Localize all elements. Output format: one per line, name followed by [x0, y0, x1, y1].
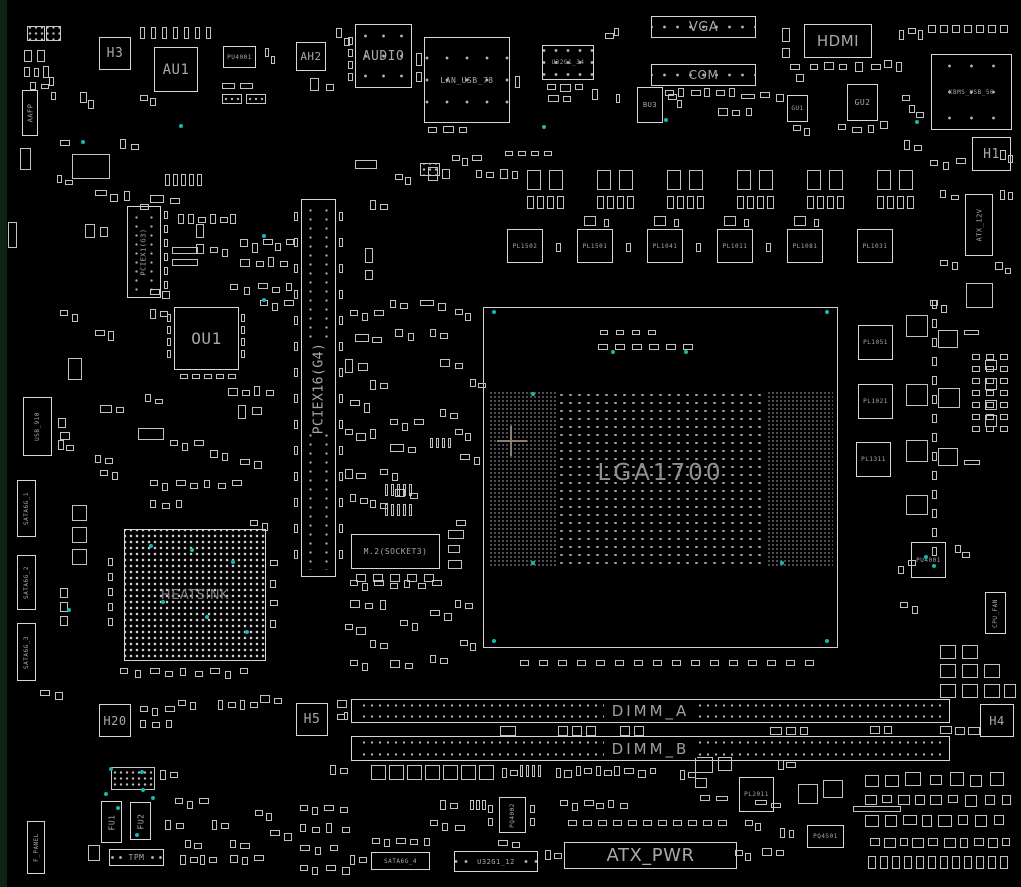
smd-part[interactable] — [930, 775, 942, 785]
smd-part[interactable] — [238, 405, 246, 419]
smd-part[interactable] — [364, 403, 370, 413]
smd-part[interactable] — [944, 838, 956, 848]
smd-part[interactable] — [853, 806, 901, 812]
smd-part[interactable] — [339, 498, 343, 507]
smd-part[interactable] — [605, 33, 614, 39]
smd-part[interactable] — [1004, 684, 1016, 698]
smd-part[interactable] — [900, 602, 908, 608]
smd-part[interactable] — [390, 300, 396, 308]
smd-part[interactable] — [955, 727, 965, 735]
smd-part[interactable] — [440, 658, 448, 664]
smd-part[interactable] — [1000, 25, 1008, 33]
smd-part[interactable] — [704, 88, 710, 97]
chip-pq4501[interactable]: PQ4501 — [807, 825, 844, 848]
smd-part[interactable] — [252, 243, 258, 253]
smd-part[interactable] — [300, 845, 310, 851]
smd-part[interactable] — [906, 495, 928, 515]
smd-part[interactable] — [549, 170, 563, 190]
smd-part[interactable] — [914, 145, 922, 151]
smd-part[interactable] — [228, 702, 236, 708]
smd-part[interactable] — [972, 354, 980, 360]
smd-part[interactable] — [930, 160, 938, 166]
connector-atx-pwr[interactable]: ATX_PWR — [564, 842, 737, 869]
smd-part[interactable] — [1008, 192, 1013, 200]
smd-part[interactable] — [654, 216, 666, 226]
smd-part[interactable] — [500, 726, 516, 736]
smd-part[interactable] — [339, 472, 343, 481]
smd-part[interactable] — [865, 775, 879, 787]
smd-part[interactable] — [789, 830, 794, 838]
smd-part[interactable] — [430, 329, 436, 337]
smd-part[interactable] — [164, 253, 168, 261]
smd-part[interactable] — [932, 357, 937, 366]
smd-part[interactable] — [617, 196, 624, 209]
smd-part[interactable] — [100, 405, 112, 413]
smd-part[interactable] — [212, 820, 217, 830]
smd-part[interactable] — [370, 380, 376, 390]
smd-part[interactable] — [448, 560, 462, 569]
smd-part[interactable] — [294, 238, 298, 247]
smd-part[interactable] — [222, 249, 228, 257]
smd-part[interactable] — [140, 95, 148, 101]
smd-part[interactable] — [240, 83, 253, 89]
smd-part[interactable] — [539, 660, 548, 666]
smd-part[interactable] — [337, 700, 347, 708]
smd-part[interactable] — [448, 545, 460, 553]
smd-part[interactable] — [584, 800, 594, 806]
smd-part[interactable] — [373, 574, 383, 582]
connector-kbms-usb-56[interactable]: KBMS_USB_56 — [931, 54, 1012, 130]
smd-part[interactable] — [776, 94, 784, 102]
smd-part[interactable] — [915, 795, 925, 805]
smd-part[interactable] — [300, 824, 306, 832]
slot-dimm-a[interactable]: DIMM_A — [351, 699, 950, 723]
smd-part[interactable] — [60, 140, 70, 146]
smd-part[interactable] — [167, 326, 171, 334]
smd-part[interactable] — [165, 174, 170, 186]
smd-part[interactable] — [563, 96, 571, 102]
chip-pu4001-top[interactable]: PU4001 — [223, 46, 256, 68]
smd-part[interactable] — [478, 383, 486, 388]
smd-part[interactable] — [476, 800, 480, 810]
smd-part[interactable] — [906, 315, 928, 337]
smd-part[interactable] — [932, 471, 937, 480]
smd-part[interactable] — [908, 560, 916, 566]
smd-part[interactable] — [206, 27, 211, 39]
smd-part[interactable] — [221, 823, 229, 829]
smd-part[interactable] — [782, 28, 790, 42]
connector-sata6g-4[interactable]: SATA6G_4 — [371, 852, 430, 870]
smd-part[interactable] — [548, 95, 559, 102]
smd-part[interactable] — [880, 856, 888, 869]
smd-part[interactable] — [162, 291, 170, 299]
smd-part[interactable] — [596, 803, 604, 809]
component-h20[interactable]: H20 — [99, 704, 131, 737]
smd-part[interactable] — [390, 583, 398, 589]
smd-part[interactable] — [1000, 378, 1008, 384]
smd-part[interactable] — [604, 770, 612, 776]
smd-part[interactable] — [397, 484, 400, 496]
smd-part[interactable] — [51, 92, 56, 100]
pin-header-dots[interactable] — [27, 26, 45, 41]
connector-lan-usb-78[interactable]: LAN_USB_78 — [424, 37, 510, 123]
smd-part[interactable] — [110, 194, 118, 202]
smd-part[interactable] — [653, 660, 662, 666]
smd-part[interactable] — [372, 337, 382, 343]
smd-part[interactable] — [986, 402, 994, 408]
smd-part[interactable] — [362, 313, 368, 321]
smd-part[interactable] — [695, 757, 713, 773]
smd-part[interactable] — [780, 828, 785, 838]
smd-part[interactable] — [410, 839, 418, 845]
smd-part[interactable] — [190, 483, 198, 489]
smd-part[interactable] — [108, 588, 113, 596]
smd-part[interactable] — [804, 128, 810, 136]
smd-part[interactable] — [416, 72, 422, 82]
smd-part[interactable] — [995, 262, 1003, 270]
smd-part[interactable] — [339, 368, 343, 377]
smd-part[interactable] — [340, 768, 348, 774]
smd-part[interactable] — [884, 60, 892, 68]
smd-part[interactable] — [256, 261, 264, 267]
slot-m2-socket3[interactable]: M.2(SOCKET3) — [351, 534, 440, 569]
smd-part[interactable] — [152, 708, 158, 716]
smd-part[interactable] — [198, 217, 206, 223]
smd-part[interactable] — [729, 660, 738, 666]
smd-part[interactable] — [424, 574, 434, 582]
smd-part[interactable] — [498, 840, 508, 846]
smd-part[interactable] — [350, 660, 358, 666]
smd-part[interactable] — [952, 856, 960, 869]
smd-part[interactable] — [220, 217, 228, 223]
smd-part[interactable] — [614, 766, 620, 776]
smd-part[interactable] — [560, 84, 571, 92]
smd-part[interactable] — [984, 664, 1000, 678]
smd-part[interactable] — [8, 222, 17, 248]
smd-part[interactable] — [164, 211, 168, 219]
smd-part[interactable] — [140, 204, 149, 210]
smd-part[interactable] — [962, 664, 978, 678]
component-h3[interactable]: H3 — [99, 37, 131, 70]
smd-part[interactable] — [748, 660, 757, 666]
smd-part[interactable] — [195, 671, 203, 677]
smd-part[interactable] — [430, 610, 440, 616]
smd-part[interactable] — [385, 504, 388, 516]
smd-part[interactable] — [904, 140, 910, 150]
smd-part[interactable] — [465, 433, 471, 441]
smd-part[interactable] — [744, 219, 749, 227]
smd-part[interactable] — [108, 331, 114, 341]
smd-part[interactable] — [424, 838, 430, 846]
smd-part[interactable] — [912, 838, 924, 848]
smd-part[interactable] — [204, 374, 212, 379]
smd-part[interactable] — [994, 815, 1004, 825]
smd-part[interactable] — [210, 214, 216, 224]
smd-part[interactable] — [868, 856, 876, 869]
chip-pu4001-right[interactable]: PU4001 — [911, 542, 946, 578]
smd-part[interactable] — [430, 438, 433, 448]
smd-part[interactable] — [150, 195, 164, 203]
smd-part[interactable] — [230, 214, 236, 224]
smd-part[interactable] — [904, 856, 912, 869]
smd-part[interactable] — [729, 88, 735, 97]
smd-part[interactable] — [365, 270, 373, 280]
smd-part[interactable] — [615, 344, 625, 350]
smd-part[interactable] — [55, 692, 63, 700]
smd-part[interactable] — [885, 815, 897, 827]
smd-part[interactable] — [294, 368, 298, 377]
smd-part[interactable] — [162, 483, 168, 491]
smd-part[interactable] — [877, 170, 891, 190]
smd-part[interactable] — [958, 815, 968, 825]
smd-part[interactable] — [614, 28, 619, 36]
smd-part[interactable] — [899, 170, 913, 190]
smd-part[interactable] — [455, 309, 463, 315]
smd-part[interactable] — [170, 198, 180, 204]
smd-part[interactable] — [170, 440, 178, 446]
smd-part[interactable] — [448, 530, 464, 539]
smd-part[interactable] — [380, 600, 386, 610]
smd-part[interactable] — [479, 765, 494, 780]
choke-pl1502[interactable]: PL1502 — [507, 229, 543, 263]
smd-part[interactable] — [230, 855, 238, 863]
smd-part[interactable] — [938, 388, 960, 408]
smd-part[interactable] — [554, 853, 562, 859]
smd-part[interactable] — [530, 805, 535, 813]
smd-part[interactable] — [643, 820, 652, 826]
smd-part[interactable] — [252, 407, 262, 415]
smd-part[interactable] — [520, 660, 529, 666]
smd-part[interactable] — [584, 768, 592, 774]
smd-part[interactable] — [365, 248, 373, 263]
smd-part[interactable] — [396, 838, 406, 844]
smd-part[interactable] — [674, 219, 679, 227]
smd-part[interactable] — [940, 664, 956, 678]
smd-part[interactable] — [140, 27, 145, 39]
smd-part[interactable] — [397, 504, 400, 516]
smd-part[interactable] — [150, 309, 156, 319]
smd-part[interactable] — [600, 330, 608, 335]
smd-part[interactable] — [286, 283, 292, 291]
smd-part[interactable] — [486, 172, 494, 178]
smd-part[interactable] — [345, 469, 353, 479]
smd-part[interactable] — [270, 580, 276, 588]
smd-part[interactable] — [57, 175, 62, 183]
smd-part[interactable] — [272, 287, 280, 293]
fuse-fu2[interactable]: FU2 — [130, 802, 151, 840]
smd-part[interactable] — [222, 453, 228, 461]
smd-part[interactable] — [976, 25, 984, 33]
smd-part[interactable] — [294, 446, 298, 455]
smd-part[interactable] — [66, 445, 74, 451]
smd-part[interactable] — [624, 768, 634, 774]
smd-part[interactable] — [116, 407, 124, 413]
smd-part[interactable] — [420, 300, 434, 306]
smd-part[interactable] — [964, 460, 980, 465]
smd-part[interactable] — [270, 600, 278, 606]
smd-part[interactable] — [390, 660, 400, 668]
smd-part[interactable] — [455, 825, 465, 831]
smd-part[interactable] — [932, 414, 937, 423]
smd-part[interactable] — [339, 446, 343, 455]
smd-part[interactable] — [455, 363, 463, 369]
smd-part[interactable] — [678, 88, 684, 97]
smd-part[interactable] — [210, 247, 218, 253]
connector-u32g1-34[interactable]: U32G1_34 — [542, 45, 594, 80]
smd-part[interactable] — [940, 645, 956, 659]
smd-part[interactable] — [1000, 414, 1008, 420]
smd-part[interactable] — [339, 316, 343, 325]
smd-part[interactable] — [472, 155, 482, 161]
smd-part[interactable] — [232, 480, 242, 486]
smd-part[interactable] — [20, 148, 31, 170]
smd-part[interactable] — [210, 668, 220, 674]
smd-part[interactable] — [356, 627, 366, 635]
smd-part[interactable] — [456, 520, 466, 526]
smd-part[interactable] — [619, 170, 633, 190]
smd-part[interactable] — [389, 765, 404, 780]
smd-part[interactable] — [965, 795, 977, 807]
smd-part[interactable] — [616, 94, 620, 103]
smd-part[interactable] — [1000, 366, 1008, 372]
smd-part[interactable] — [254, 855, 264, 861]
smd-part[interactable] — [72, 527, 87, 543]
smd-part[interactable] — [180, 668, 186, 676]
smd-part[interactable] — [443, 126, 454, 133]
smd-part[interactable] — [807, 196, 814, 209]
smd-part[interactable] — [767, 660, 776, 666]
slot-dimm-b[interactable]: DIMM_B — [351, 736, 950, 761]
smd-part[interactable] — [312, 807, 318, 815]
smd-part[interactable] — [162, 503, 170, 509]
smd-part[interactable] — [60, 310, 68, 316]
smd-part[interactable] — [187, 801, 193, 809]
choke-pl1021[interactable]: PL1021 — [858, 384, 893, 419]
smd-part[interactable] — [865, 795, 877, 805]
smd-part[interactable] — [597, 170, 611, 190]
smd-part[interactable] — [680, 770, 685, 780]
smd-part[interactable] — [586, 726, 596, 736]
smd-part[interactable] — [258, 283, 268, 289]
smd-part[interactable] — [650, 768, 656, 774]
smd-part[interactable] — [176, 480, 186, 486]
chip-pq4002[interactable]: PQ4002 — [499, 797, 526, 833]
smd-part[interactable] — [294, 394, 298, 403]
smd-part[interactable] — [209, 857, 217, 863]
smd-part[interactable] — [448, 438, 451, 448]
smd-part[interactable] — [407, 765, 422, 780]
header-u32g1-12[interactable]: U32G1_12 — [454, 851, 538, 872]
smd-part[interactable] — [182, 443, 188, 451]
smd-part[interactable] — [385, 484, 388, 496]
smd-part[interactable] — [930, 795, 942, 805]
smd-part[interactable] — [218, 483, 226, 489]
smd-part[interactable] — [30, 82, 36, 90]
smd-part[interactable] — [632, 344, 642, 350]
smd-part[interactable] — [416, 53, 422, 66]
smd-part[interactable] — [72, 154, 110, 179]
chip-au1[interactable]: AU1 — [154, 47, 198, 92]
smd-part[interactable] — [512, 171, 518, 179]
smd-part[interactable] — [408, 333, 414, 341]
smd-part[interactable] — [151, 27, 156, 39]
smd-part[interactable] — [658, 820, 667, 826]
smd-part[interactable] — [242, 390, 250, 396]
smd-part[interactable] — [928, 838, 938, 846]
smd-part[interactable] — [755, 823, 761, 831]
smd-part[interactable] — [576, 766, 581, 776]
smd-part[interactable] — [339, 264, 343, 273]
smd-part[interactable] — [906, 384, 928, 406]
smd-part[interactable] — [778, 760, 784, 770]
smd-part[interactable] — [152, 722, 160, 728]
smd-part[interactable] — [390, 419, 398, 425]
connector-sata6g-1[interactable]: SATA6G_1 — [17, 480, 36, 537]
smd-part[interactable] — [677, 100, 682, 108]
smd-part[interactable] — [1002, 795, 1011, 805]
smd-part[interactable] — [173, 174, 178, 186]
smd-part[interactable] — [885, 775, 899, 787]
smd-part[interactable] — [741, 94, 755, 99]
smd-part[interactable] — [572, 726, 582, 736]
smd-part[interactable] — [564, 770, 572, 778]
smd-part[interactable] — [240, 700, 245, 710]
smd-part[interactable] — [88, 100, 94, 109]
smd-part[interactable] — [442, 169, 450, 179]
smd-part[interactable] — [770, 727, 782, 735]
smd-part[interactable] — [502, 768, 507, 778]
smd-part[interactable] — [131, 144, 139, 150]
smd-part[interactable] — [986, 414, 994, 420]
connector-aafp[interactable]: AAFP — [22, 90, 38, 136]
smd-part[interactable] — [337, 714, 345, 720]
smd-part[interactable] — [696, 243, 701, 252]
smd-part[interactable] — [405, 177, 411, 185]
smd-part[interactable] — [240, 459, 250, 465]
smd-part[interactable] — [440, 409, 446, 417]
smd-part[interactable] — [400, 620, 408, 626]
chip-gu1[interactable]: GU1 — [787, 95, 808, 122]
smd-part[interactable] — [677, 196, 684, 209]
smd-part[interactable] — [294, 212, 298, 221]
smd-part[interactable] — [172, 259, 198, 266]
smd-part[interactable] — [400, 303, 408, 309]
smd-part[interactable] — [165, 671, 173, 677]
smd-part[interactable] — [310, 78, 319, 91]
smd-part[interactable] — [108, 558, 113, 566]
chip-ou1[interactable]: OU1 — [174, 307, 239, 370]
smd-part[interactable] — [355, 334, 369, 342]
smd-part[interactable] — [40, 690, 50, 696]
smd-part[interactable] — [470, 800, 474, 810]
smd-part[interactable] — [909, 105, 915, 113]
smd-part[interactable] — [240, 259, 250, 267]
smd-part[interactable] — [80, 92, 87, 103]
smd-part[interactable] — [932, 319, 937, 328]
smd-part[interactable] — [700, 795, 710, 801]
smd-part[interactable] — [145, 394, 151, 402]
smd-part[interactable] — [192, 374, 200, 379]
smd-part[interactable] — [896, 62, 902, 72]
smd-part[interactable] — [793, 125, 801, 131]
smd-part[interactable] — [986, 378, 994, 384]
smd-part[interactable] — [167, 350, 171, 358]
smd-part[interactable] — [520, 765, 523, 777]
smd-part[interactable] — [598, 820, 607, 826]
smd-part[interactable] — [976, 856, 984, 869]
smd-part[interactable] — [512, 842, 520, 848]
smd-part[interactable] — [687, 196, 694, 209]
